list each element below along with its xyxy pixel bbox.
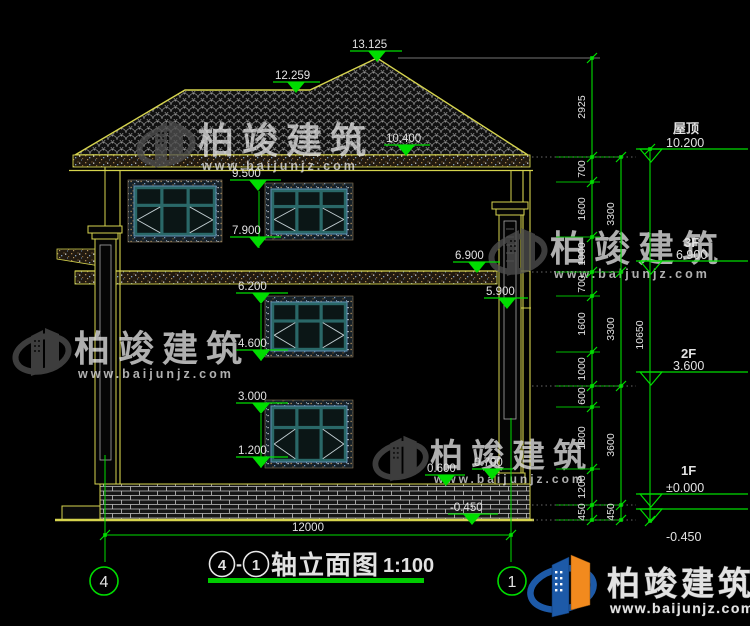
window xyxy=(128,180,222,242)
spot-roof-ridge: 12.259 xyxy=(275,70,310,82)
watermark-roof: 柏竣建筑 www.baijunjz.com xyxy=(136,120,374,173)
title-underline xyxy=(208,578,424,583)
spot-plinth-left: 0.600 xyxy=(427,463,456,475)
dim-inner-5: 1600 xyxy=(576,312,588,336)
drawing-title: 轴立面图 xyxy=(271,550,379,580)
watermark-url: www.baijunjz.com xyxy=(201,159,358,173)
logo-brand: 柏竣建筑 xyxy=(607,565,750,602)
dim-mid-0: 3300 xyxy=(605,202,617,226)
cad-elevation-drawing: 柏竣建筑 www.baijunjz.com 柏竣建筑 www.baijunjz.… xyxy=(0,0,750,626)
dim-mid-1: 3300 xyxy=(605,317,617,341)
watermark-left: 柏竣建筑 www.baijunjz.com xyxy=(12,328,250,381)
left-step xyxy=(62,506,100,520)
title-separator: - xyxy=(236,554,242,574)
axis-right-number: 1 xyxy=(508,574,517,591)
spot-w1-sill: 1.200 xyxy=(238,445,267,457)
logo-building-blue-icon xyxy=(552,557,569,617)
dim-inner-6: 1000 xyxy=(576,357,588,381)
spot-w3-sill: 7.900 xyxy=(232,225,261,237)
dim-inner-7: 600 xyxy=(576,387,588,405)
dim-total-width: 12000 xyxy=(292,522,324,534)
watermark-brand: 柏竣建筑 xyxy=(198,120,374,161)
dim-mid-2: 3600 xyxy=(605,433,617,457)
spot-w2-sill: 4.600 xyxy=(238,338,267,350)
logo-url: www.baijunjz.com xyxy=(609,600,750,616)
window xyxy=(265,183,353,240)
watermark-url: www.baijunjz.com xyxy=(433,472,586,486)
dim-inner-4: 700 xyxy=(576,275,588,293)
floor-ground-value: -0.450 xyxy=(666,530,701,544)
spot-w2-head: 6.200 xyxy=(238,281,267,293)
dim-total-height: 10650 xyxy=(634,320,646,349)
dim-inner-8: 1800 xyxy=(576,426,588,450)
watermark-url: www.baijunjz.com xyxy=(77,367,234,381)
floor-roof-value: 10.200 xyxy=(666,136,704,150)
company-logo: 柏竣建筑 www.baijunjz.com xyxy=(527,555,750,617)
title-axis-left: 4 xyxy=(218,557,227,574)
floor-1f-value: ±0.000 xyxy=(666,481,704,495)
floor-3f-value: 6.900 xyxy=(676,248,707,262)
dim-mid-3: 450 xyxy=(605,503,617,521)
floor-1f-label: 1F xyxy=(681,463,696,478)
title-axis-right: 1 xyxy=(252,557,260,574)
spot-w1-head: 3.000 xyxy=(238,391,267,403)
spot-plinth-right: 0.700 xyxy=(474,457,503,469)
window xyxy=(265,296,353,357)
floor-2f-value: 3.600 xyxy=(673,359,704,373)
spot-w3-head: 9.500 xyxy=(232,168,261,180)
spot-ground: -0.450 xyxy=(450,502,483,514)
spot-roof-peak: 13.125 xyxy=(352,39,387,51)
dim-inner-10: 450 xyxy=(576,503,588,521)
window xyxy=(265,400,353,468)
watermark-brand: 柏竣建筑 xyxy=(74,328,250,369)
spot-slab-top: 6.900 xyxy=(455,250,484,262)
title-block: 4 - 1 轴立面图 1:100 xyxy=(208,550,434,583)
dim-inner-3: 1000 xyxy=(576,242,588,266)
dim-inner-2: 1600 xyxy=(576,197,588,221)
dim-inner-0: 2925 xyxy=(576,95,588,119)
floor-band xyxy=(75,271,497,284)
spot-eave: 10.400 xyxy=(386,133,421,145)
dim-inner-9: 1200 xyxy=(576,475,588,499)
dim-inner-1: 700 xyxy=(576,160,588,178)
drawing-canvas: 柏竣建筑 www.baijunjz.com 柏竣建筑 www.baijunjz.… xyxy=(0,0,750,626)
logo-building-orange-icon xyxy=(571,555,590,610)
spot-porch-soffit: 5.900 xyxy=(486,286,515,298)
drawing-scale: 1:100 xyxy=(383,555,434,577)
axis-left-number: 4 xyxy=(100,574,109,591)
floor-roof-label: 屋顶 xyxy=(673,121,699,136)
